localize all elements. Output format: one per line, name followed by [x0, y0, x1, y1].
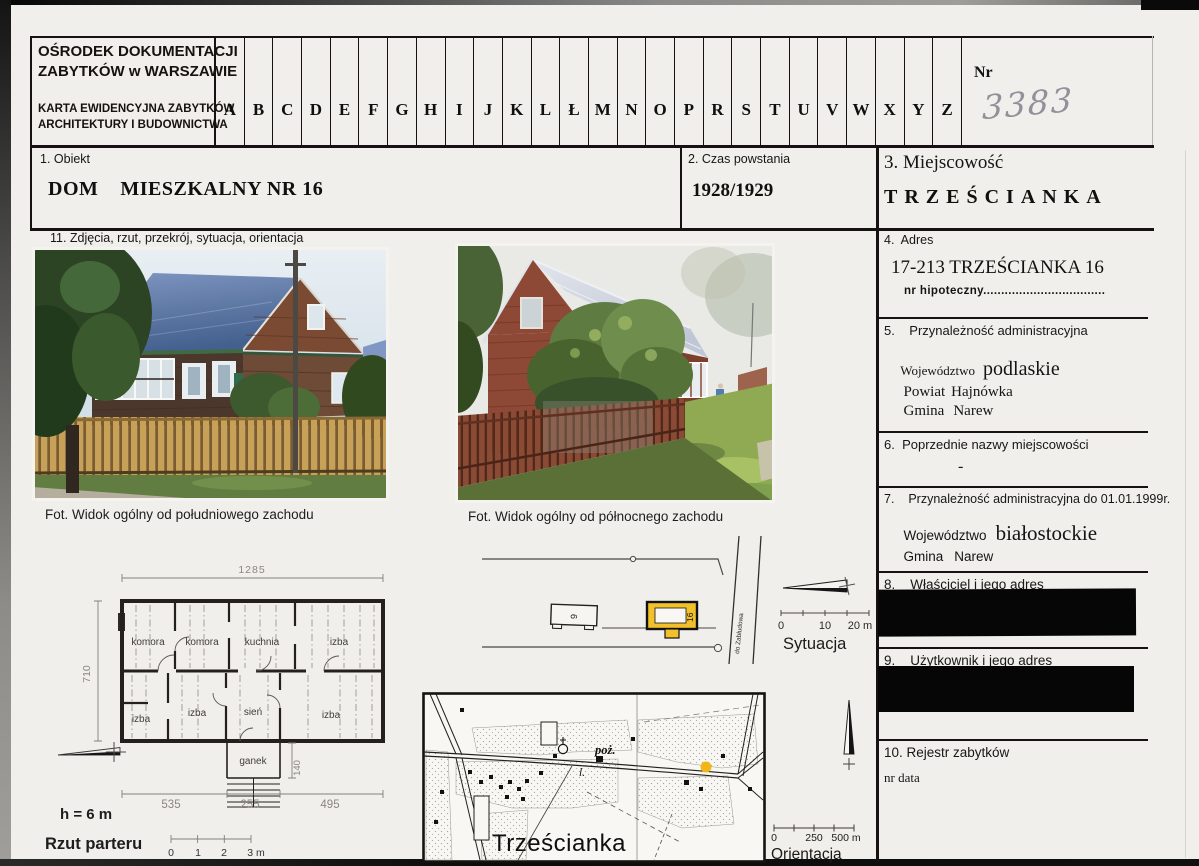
room-label: komora	[185, 637, 219, 648]
scan-corner-top-right	[1141, 0, 1199, 10]
card-type-line1: KARTA EWIDENCYJNA ZABYTKÓW	[38, 101, 234, 117]
alphabet-cell-h: H	[417, 36, 446, 146]
alphabet-cell-t: T	[761, 36, 790, 146]
alphabet-cell-k: K	[503, 36, 532, 146]
nr-handwritten-value: 3383	[982, 80, 1074, 127]
field-6-label: 6. Poprzednie nazwy miejscowości	[884, 437, 1088, 452]
field-1-value: DOM MIESZKALNY NR 16	[48, 178, 323, 201]
situation-scale-2: 20 m	[848, 620, 872, 632]
field-9-redaction-box	[878, 666, 1134, 712]
field-11-label: 11. Zdjęcia, rzut, przekrój, sytuacja, o…	[50, 231, 303, 245]
orientation-title: Orientacja	[771, 846, 842, 863]
field-5-key-1: Powiat	[904, 384, 946, 400]
floor-plan-drawing: komora komora kuchnia izba izba izba sie…	[40, 556, 420, 864]
plan-scale-3: 3 m	[247, 847, 265, 859]
map-label-l: l.	[579, 767, 585, 779]
house-16-highlighted: 16	[647, 602, 697, 638]
org-name: OŚRODEK DOKUMENTACJI ZABYTKÓW w WARSZAWI…	[38, 42, 238, 81]
north-arrow-orientation	[843, 700, 855, 770]
alphabet-cell-w: W	[847, 36, 876, 146]
orientation-map: poż. l. Trześcianka 0 250 500 m Orientac…	[422, 692, 874, 864]
field-7-val-0: białostockie	[996, 521, 1097, 545]
field-2-label: 2. Czas powstania	[688, 152, 790, 166]
field-8-redaction-box	[878, 588, 1136, 636]
alphabet-cell-u: U	[790, 36, 819, 146]
room-label: izba	[132, 714, 151, 725]
alphabet-cell-m: M	[589, 36, 618, 146]
field-5-val-2: Narew	[953, 403, 993, 419]
card-type-line2: ARCHITEKTURY I BUDOWNICTWA	[38, 117, 234, 133]
orientation-scale-1: 250	[805, 832, 823, 844]
field-1-label: 1. Obiekt	[40, 152, 90, 166]
alphabet-index-strip: A B C D E F G H I J K L Ł M N O P R S T …	[216, 36, 962, 146]
dim-left: 710	[81, 665, 93, 683]
dim-bottom-right: 495	[320, 799, 339, 811]
alphabet-cell-p: P	[675, 36, 704, 146]
field-10-nr-data: nr data	[884, 770, 920, 786]
alphabet-cell-f: F	[359, 36, 388, 146]
right-col-line-3	[876, 486, 1148, 488]
road-label: do Zabłudowa	[734, 612, 745, 654]
heritage-record-card: OŚRODEK DOKUMENTACJI ZABYTKÓW w WARSZAWI…	[0, 0, 1199, 866]
field-2-value: 1928/1929	[692, 180, 773, 202]
alphabet-cell-r: R	[704, 36, 733, 146]
alphabet-cell-z: Z	[933, 36, 962, 146]
alphabet-cell-b: B	[245, 36, 274, 146]
field-4-label: 4. Adres	[884, 233, 933, 247]
field-3-label: 3. Miejscowość	[884, 152, 1003, 174]
right-col-line-5	[876, 647, 1148, 649]
field-4-value: 17-213 TRZEŚCIANKA 16	[891, 257, 1104, 279]
orientation-scale-0: 0	[771, 832, 777, 844]
right-column-divider	[876, 148, 879, 862]
right-col-line-1	[876, 317, 1148, 319]
room-label: izba	[322, 710, 341, 721]
field-5-wojewodztwo: Województwopodlaskie	[881, 342, 1060, 367]
situation-title: Sytuacja	[783, 635, 847, 653]
orientation-scale-2: 500 m	[831, 832, 860, 844]
dim-bottom-left: 535	[161, 799, 180, 811]
field-7-key-0: Województwo	[904, 528, 987, 543]
dim-porch: 140	[292, 760, 303, 776]
situation-sketch: 9 16 do Zabłudowa 0 10 20 m Sytuacja	[448, 534, 875, 666]
photo-view-southwest	[32, 247, 389, 501]
plan-title: Rzut parteru	[45, 835, 142, 853]
table-left-border	[30, 36, 32, 230]
alphabet-cell-s: S	[732, 36, 761, 146]
village-name-label: Trześcianka	[492, 830, 626, 857]
plan-height-note: h = 6 m	[60, 806, 112, 823]
outbuilding-number: 9	[569, 614, 579, 619]
alphabet-cell-d: D	[302, 36, 331, 146]
field-6-value: -	[958, 458, 963, 476]
field-5-key-0: Województwo	[900, 363, 975, 378]
north-arrow-situation	[783, 577, 855, 595]
nr-label: Nr	[974, 64, 993, 82]
room-label: izba	[330, 637, 349, 648]
photo-caption-northwest: Fot. Widok ogólny od północnego zachodu	[468, 509, 723, 524]
alphabet-cell-v: V	[818, 36, 847, 146]
field-7-values: Województwobiałostockie GminaNarew	[881, 506, 1097, 579]
field-5-key-2: Gmina	[904, 403, 945, 419]
alphabet-cell-c: C	[273, 36, 302, 146]
room-label: komora	[131, 637, 165, 648]
house-number: 16	[685, 612, 695, 622]
row2-divider	[680, 148, 682, 228]
fence-sw	[32, 417, 389, 475]
alphabet-cell-x: X	[876, 36, 905, 146]
scan-edge-left	[0, 0, 11, 866]
field-4-hipoteczny: nr hipoteczny...........................…	[904, 285, 1105, 297]
alphabet-cell-i: I	[446, 36, 475, 146]
card-right-faint-edge	[1185, 150, 1186, 858]
dim-bottom-mid: 255	[240, 799, 259, 811]
utility-pole	[293, 250, 298, 473]
right-col-line-4	[876, 571, 1148, 573]
room-label: izba	[188, 708, 207, 719]
org-name-line1: OŚRODEK DOKUMENTACJI	[38, 42, 238, 62]
field-7-label: 7. Przynależność administracyjna do 01.0…	[884, 492, 1170, 506]
porch-label: ganek	[239, 756, 267, 767]
right-col-line-6	[876, 739, 1148, 741]
room-label: kuchnia	[245, 637, 280, 648]
alphabet-cell-o: O	[646, 36, 675, 146]
house-location-dot	[701, 762, 712, 773]
plan-scale-1: 1	[195, 847, 201, 859]
field-5-values: Województwopodlaskie PowiatHajnówka Gmin…	[881, 342, 1060, 405]
dim-top: 1285	[238, 564, 265, 576]
field-7-val-1: Narew	[954, 549, 993, 564]
scan-edge-top	[0, 0, 1199, 5]
alphabet-cell-j: J	[474, 36, 503, 146]
field-10-label: 10. Rejestr zabytków	[884, 745, 1009, 760]
header-right-border	[1152, 36, 1153, 146]
field-5-val-1: Hajnówka	[951, 384, 1013, 400]
room-label: sień	[244, 707, 262, 718]
right-col-line-2	[876, 431, 1148, 433]
plan-scale-2: 2	[221, 847, 227, 859]
alphabet-cell-n: N	[618, 36, 647, 146]
plan-scale-0: 0	[168, 847, 174, 859]
alphabet-cell-l-stroke: Ł	[560, 36, 589, 146]
north-arrow-plan	[58, 742, 126, 762]
alphabet-cell-l: L	[532, 36, 561, 146]
alphabet-cell-g: G	[388, 36, 417, 146]
situation-scale-0: 0	[778, 620, 784, 632]
alphabet-cell-e: E	[331, 36, 360, 146]
field-7-key-1: Gmina	[904, 549, 944, 564]
field-5-label: 5. Przynależność administracyjna	[884, 323, 1088, 338]
situation-scale-1: 10	[819, 620, 831, 632]
field-3-value: TRZEŚCIANKA	[884, 186, 1108, 209]
field-5-val-0: podlaskie	[983, 358, 1060, 380]
photo-view-northwest	[455, 243, 775, 503]
photo-caption-southwest: Fot. Widok ogólny od południowego zachod…	[45, 507, 314, 522]
map-label-poz: poż.	[594, 743, 616, 757]
alphabet-cell-a: A	[216, 36, 245, 146]
alphabet-cell-y: Y	[905, 36, 934, 146]
card-type-title: KARTA EWIDENCYJNA ZABYTKÓW ARCHITEKTURY …	[38, 101, 234, 133]
outbuilding-9: 9	[551, 604, 598, 630]
org-name-line2: ZABYTKÓW w WARSZAWIE	[38, 62, 238, 82]
field-7-wojewodztwo: Województwobiałostockie	[881, 506, 1097, 534]
